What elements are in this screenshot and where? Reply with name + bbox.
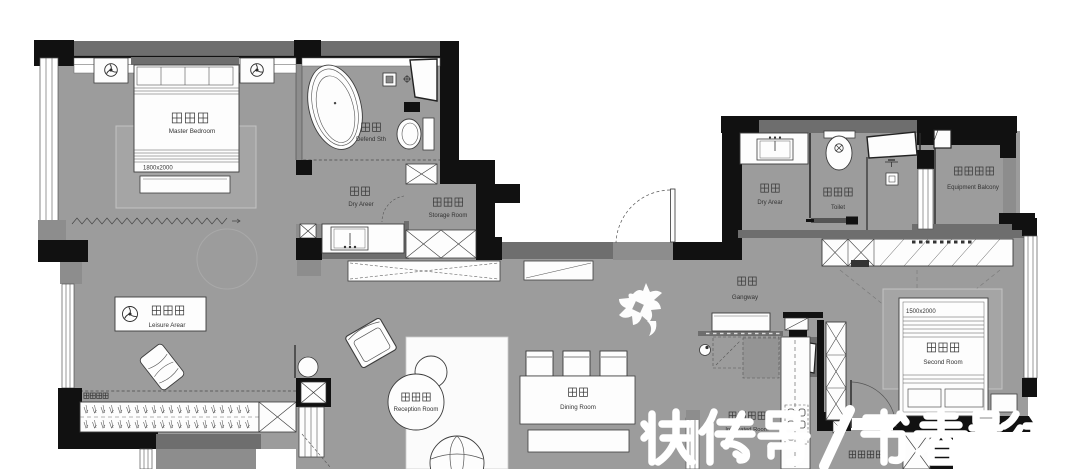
svg-text:Defend Sth: Defend Sth [356, 137, 386, 143]
svg-text:Reception Room: Reception Room [394, 407, 439, 413]
svg-text:Second Room: Second Room [923, 359, 962, 366]
svg-text:Dry Areer: Dry Areer [348, 202, 373, 208]
svg-text:Gangway: Gangway [732, 294, 759, 301]
svg-text:Equipment Balcony: Equipment Balcony [947, 185, 999, 191]
svg-text:Master Bedroom: Master Bedroom [169, 128, 216, 135]
svg-text:1800x2000: 1800x2000 [143, 166, 173, 172]
svg-text:Dining Room: Dining Room [560, 404, 596, 411]
svg-text:Storage Room: Storage Room [429, 213, 468, 219]
svg-text:Dry Arear: Dry Arear [757, 200, 782, 206]
svg-text:Leisure Arear: Leisure Arear [149, 322, 186, 329]
svg-text:Toilet: Toilet [831, 205, 845, 211]
svg-text:1500x2000: 1500x2000 [906, 309, 936, 315]
